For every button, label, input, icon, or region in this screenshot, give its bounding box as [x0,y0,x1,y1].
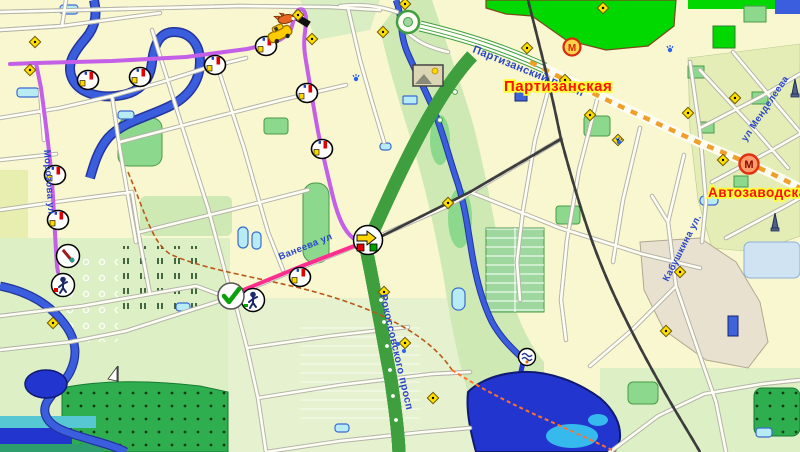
turn-arrow-icon[interactable] [354,226,383,255]
waypoint-icon[interactable] [312,140,333,159]
waypoint-icon[interactable] [130,68,151,87]
waypoint-icon[interactable] [205,56,226,75]
waypoint-icon[interactable] [78,71,99,90]
metro-m-icon[interactable]: М [740,155,759,174]
metro-m-icon[interactable]: М [564,39,581,56]
waypoint-icon[interactable] [290,268,311,287]
metro-station-label: Автозаводская [708,185,800,200]
tool-icon[interactable] [57,245,80,268]
dam-icon[interactable] [519,349,536,366]
waypoint-icon[interactable] [297,84,318,103]
map-canvas[interactable]: М М Партизанский просп Рокоссовского про… [0,0,800,452]
map-viewport[interactable]: М М Партизанский просп Рокоссовского про… [0,0,800,452]
metro-letter: М [744,159,753,171]
person-icon[interactable] [52,274,75,297]
metro-letter: М [568,43,576,54]
person-icon[interactable] [242,289,265,312]
photo-icon[interactable] [413,65,443,86]
metro-station-label: Партизанская [504,78,612,95]
checkpoint-icon[interactable] [218,283,244,309]
